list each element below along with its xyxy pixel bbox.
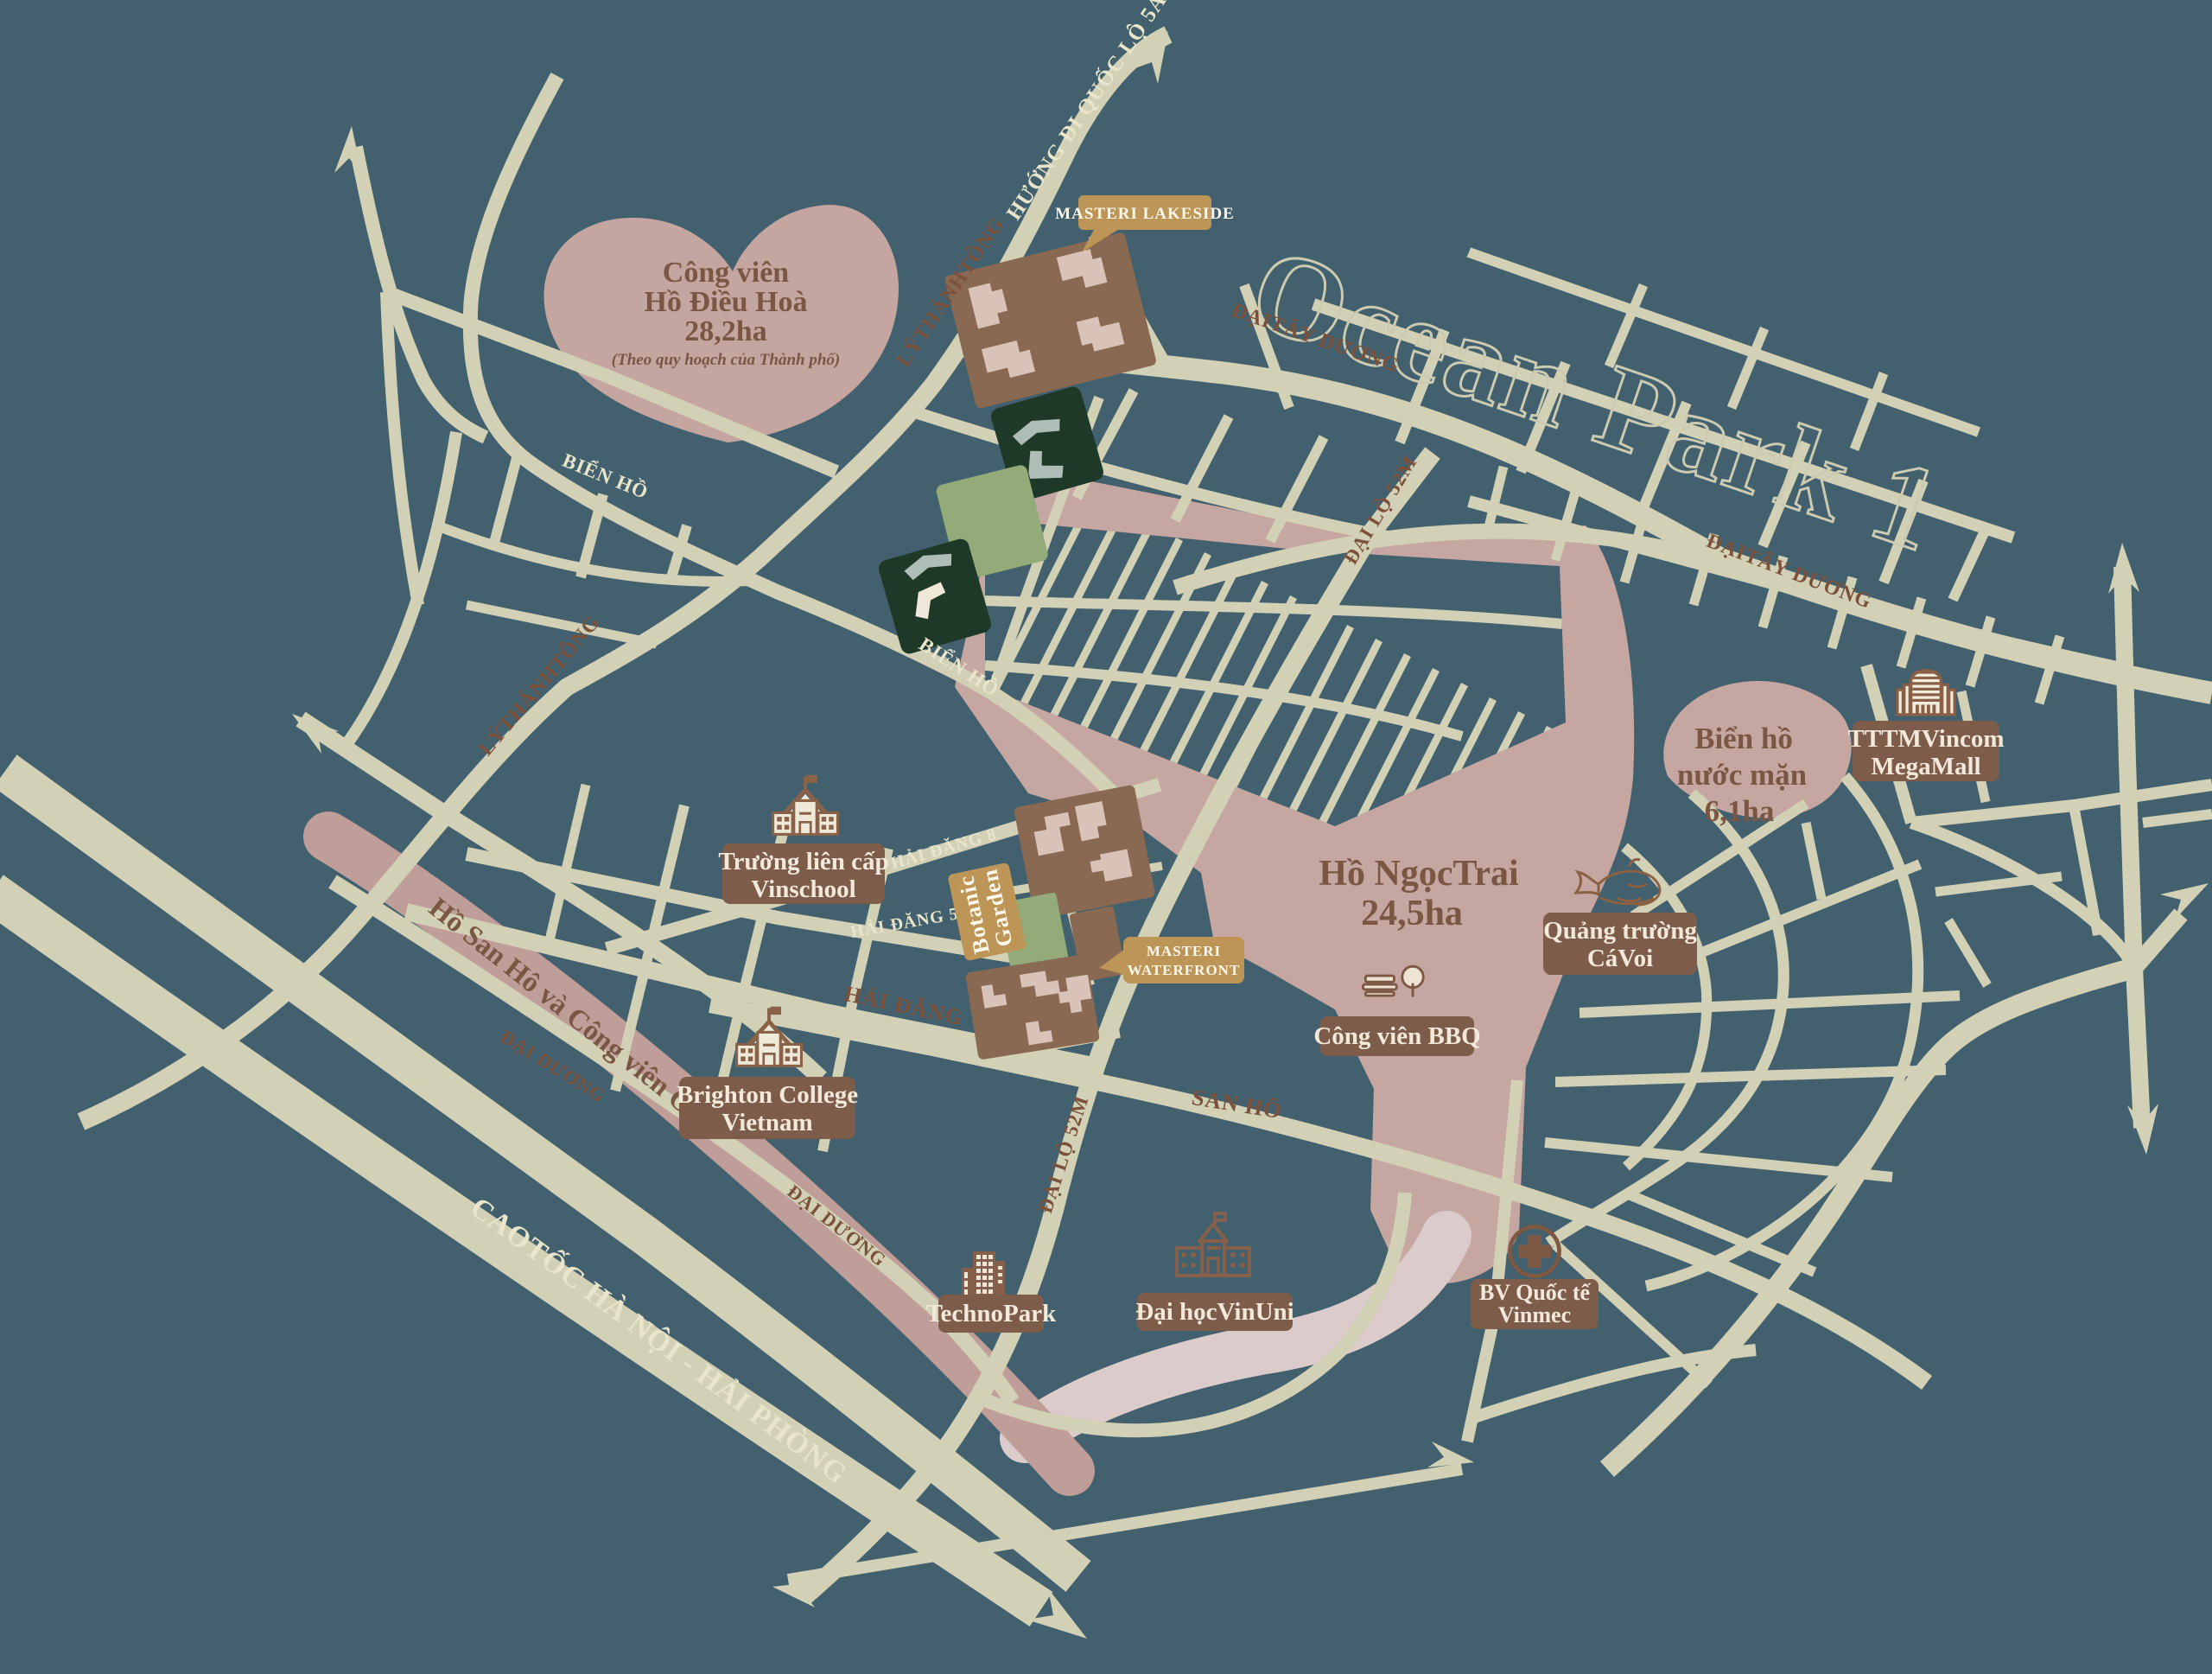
svg-text:Trường liên cấp: Trường liên cấp — [718, 848, 888, 875]
svg-text:Công viên BBQ: Công viên BBQ — [1313, 1022, 1480, 1050]
svg-text:(Theo quy hoạch của Thành phố): (Theo quy hoạch của Thành phố) — [612, 351, 840, 369]
svg-text:24,5ha: 24,5ha — [1361, 894, 1463, 933]
svg-text:MASTERI: MASTERI — [1147, 943, 1221, 959]
svg-text:Quảng trường: Quảng trường — [1543, 917, 1697, 945]
svg-text:WATERFRONT: WATERFRONT — [1128, 962, 1241, 978]
svg-text:Vietnam: Vietnam — [721, 1109, 812, 1136]
svg-text:MegaMall: MegaMall — [1871, 753, 1980, 780]
svg-text:Hồ Điều Hoà: Hồ Điều Hoà — [645, 286, 808, 318]
svg-text:BV Quốc tế: BV Quốc tế — [1479, 1280, 1592, 1305]
svg-text:TechnoPark: TechnoPark — [926, 1300, 1057, 1327]
svg-text:28,2ha: 28,2ha — [684, 315, 766, 347]
svg-text:Vinschool: Vinschool — [751, 875, 855, 903]
svg-text:Vinmec: Vinmec — [1498, 1302, 1571, 1327]
svg-text:MASTERI LAKESIDE: MASTERI LAKESIDE — [1055, 205, 1235, 223]
svg-text:nước mặn: nước mặn — [1677, 758, 1807, 792]
svg-text:Biển hồ: Biển hồ — [1694, 722, 1793, 755]
svg-text:Brighton College: Brighton College — [677, 1081, 858, 1109]
svg-text:Hồ NgọcTrai: Hồ NgọcTrai — [1319, 854, 1519, 894]
svg-text:Công viên: Công viên — [663, 257, 790, 289]
svg-text:CáVoi: CáVoi — [1587, 945, 1653, 972]
svg-text:TTTMVincom: TTTMVincom — [1848, 725, 2005, 753]
svg-text:Đại họcVinUni: Đại họcVinUni — [1135, 1298, 1294, 1326]
svg-text:6,1ha: 6,1ha — [1705, 794, 1775, 828]
